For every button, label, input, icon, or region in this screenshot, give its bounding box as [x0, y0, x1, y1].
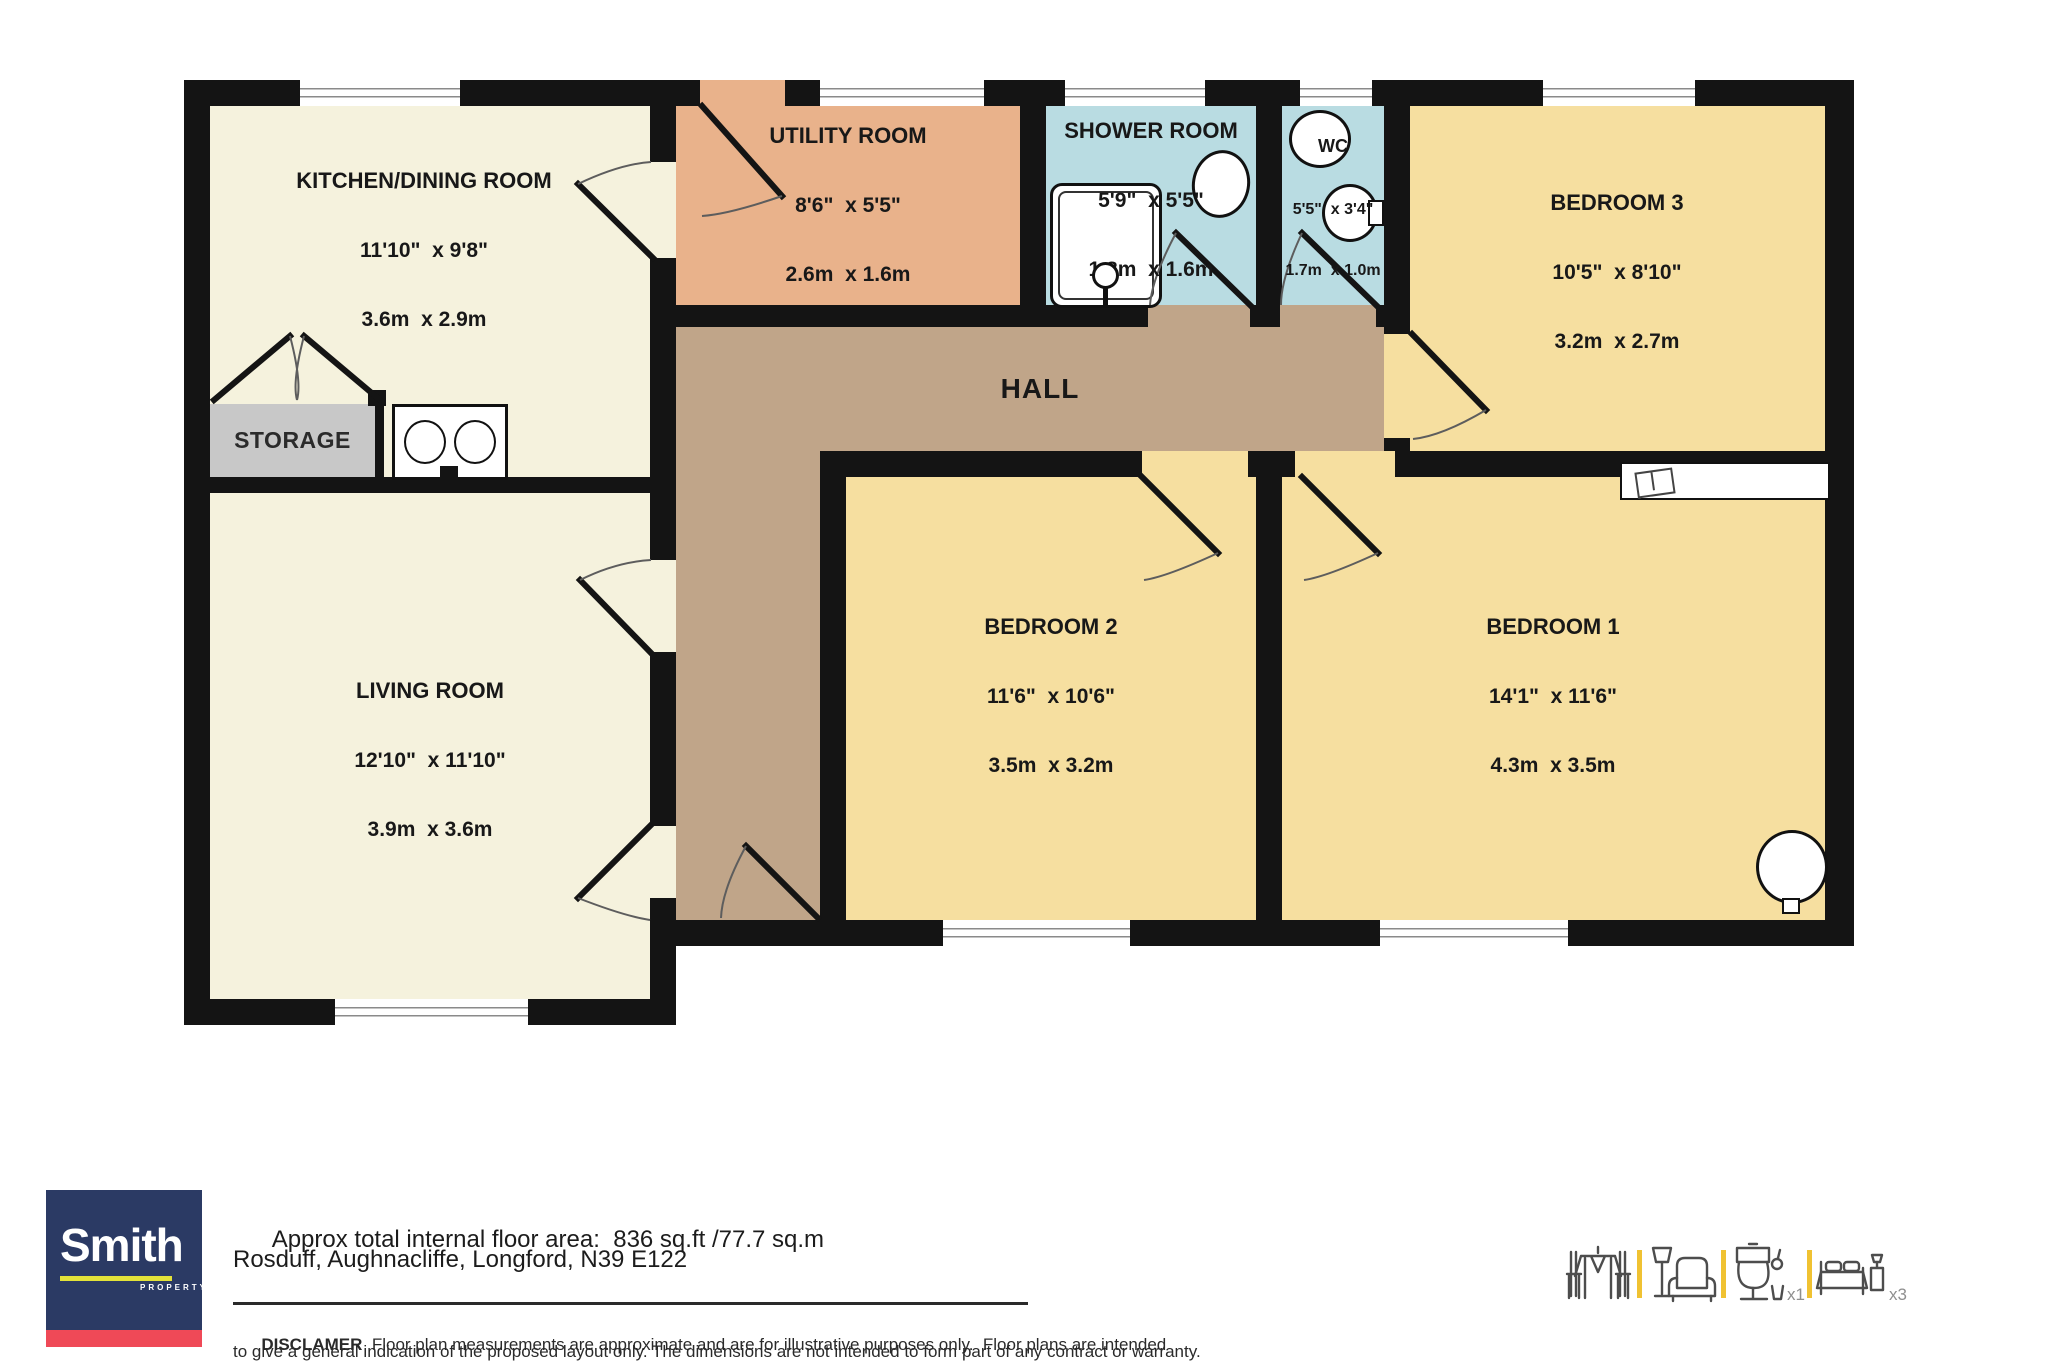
doorway-kitchen-utility	[650, 162, 676, 258]
brand-name: Smith	[60, 1218, 183, 1272]
doorway-living-hall-upper	[650, 560, 676, 652]
footer: Smith PROPERTY Approx total internal flo…	[0, 1180, 2048, 1365]
doorway-bedroom1	[1295, 451, 1395, 477]
label-kitchen: KITCHEN/DINING ROOM 11'10" x 9'8" 3.6m x…	[296, 125, 551, 375]
bedroom1-builtin-unit	[1620, 462, 1830, 500]
shower-head-icon	[1092, 262, 1119, 289]
label-bedroom3: BEDROOM 3 10'5" x 8'10" 3.2m x 2.7m	[1550, 147, 1683, 397]
bedroom1-basin-pedestal	[1782, 898, 1800, 914]
legend-divider-2	[1721, 1250, 1726, 1298]
window-bedroom3	[1543, 80, 1695, 106]
window-living	[335, 999, 528, 1025]
window-bedroom1	[1380, 920, 1568, 946]
window-kitchen	[300, 80, 460, 106]
lamp-armchair-icon	[1653, 1248, 1715, 1301]
floorplan-page: STORAGE	[0, 0, 2048, 1365]
storage-door-jamb	[368, 390, 386, 406]
toilet-icon	[1737, 1244, 1783, 1299]
toilet-count: x1	[1787, 1285, 1805, 1304]
kitchen-sink-drain	[440, 466, 458, 480]
bed-icon	[1817, 1255, 1883, 1294]
footer-divider-rule	[233, 1302, 1028, 1305]
bed-count: x3	[1889, 1285, 1907, 1304]
label-utility: UTILITY ROOM 8'6" x 5'5" 2.6m x 1.6m	[769, 80, 926, 330]
room-hall-vertical	[676, 451, 820, 920]
storage-closet: STORAGE	[210, 404, 384, 477]
logo-red-stripe	[46, 1330, 202, 1347]
doorway-bedroom2	[1142, 451, 1248, 477]
label-shower: SHOWER ROOM 5'9" x 5'5" 1.8m x 1.6m	[1064, 75, 1238, 325]
legend-divider-1	[1637, 1250, 1642, 1298]
doorway-living-hall-lower	[650, 826, 676, 898]
kitchen-sink-bowl-left	[404, 420, 446, 464]
brand-subtitle: PROPERTY	[140, 1283, 208, 1292]
property-address: Rosduff, Aughnacliffe, Longford, N39 E12…	[233, 1246, 687, 1274]
shower-stem	[1103, 288, 1108, 308]
label-hall: HALL	[1001, 373, 1080, 405]
label-bedroom2: BEDROOM 2 11'6" x 10'6" 3.5m x 3.2m	[984, 571, 1117, 821]
storage-label: STORAGE	[234, 427, 351, 454]
kitchen-sink-bowl-right	[454, 420, 496, 464]
doorway-bedroom3	[1384, 334, 1410, 438]
brand-underline	[60, 1276, 172, 1281]
label-bedroom1: BEDROOM 1 14'1" x 11'6" 4.3m x 3.5m	[1486, 571, 1619, 821]
legend-icons: x1 x3	[1565, 1242, 1910, 1314]
label-wc: WC 5'5" x 3'4" 1.7m x 1.0m	[1285, 93, 1380, 323]
label-living: LIVING ROOM 12'10" x 11'10" 3.9m x 3.6m	[354, 635, 505, 885]
builtin-unit-icon	[1634, 467, 1675, 498]
window-bedroom2	[943, 920, 1130, 946]
legend-divider-3	[1807, 1250, 1812, 1298]
smith-logo: Smith PROPERTY	[46, 1190, 202, 1330]
floor-plan: STORAGE	[0, 0, 2048, 1100]
disclaimer-line-2: to give a general indication of the prop…	[233, 1342, 1201, 1362]
dining-table-icon	[1567, 1247, 1630, 1298]
bedroom1-basin	[1756, 830, 1828, 904]
